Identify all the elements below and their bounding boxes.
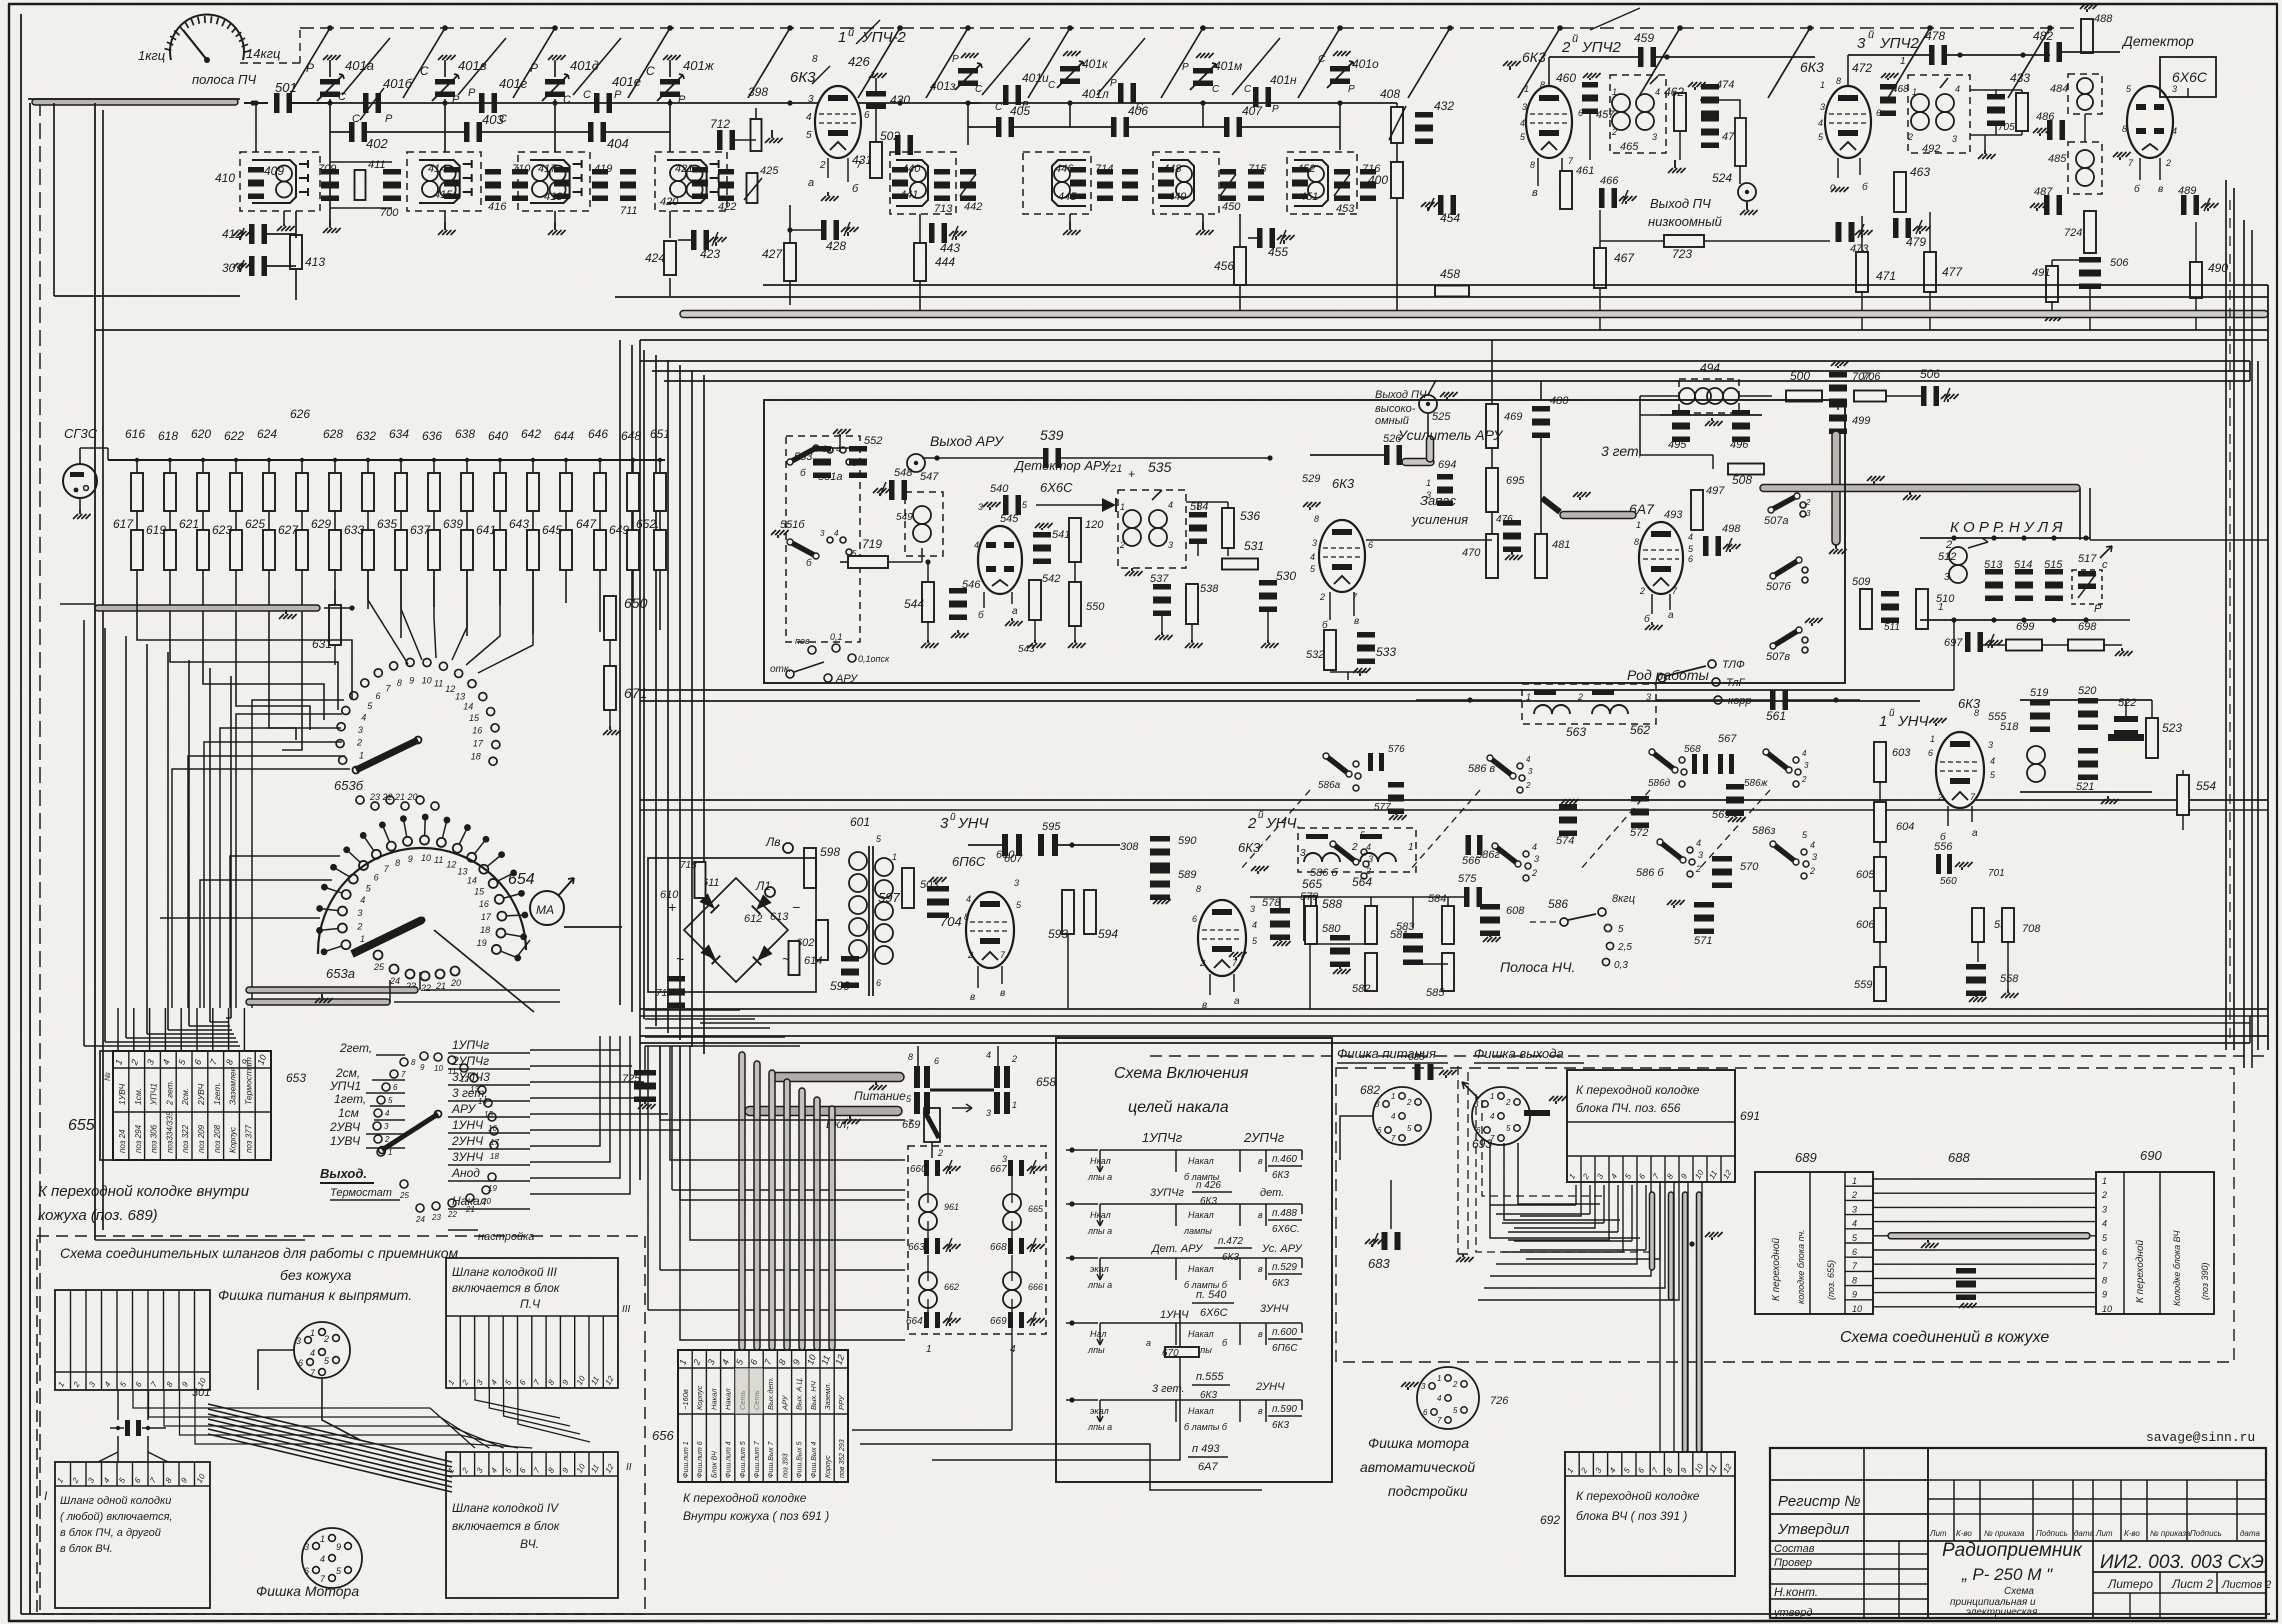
svg-text:3 гет.: 3 гет. <box>1152 1383 1185 1395</box>
svg-text:Р: Р <box>678 94 686 106</box>
svg-text:1УПЧг: 1УПЧг <box>1142 1130 1183 1145</box>
svg-text:6: 6 <box>374 873 379 883</box>
svg-text:500: 500 <box>1790 369 1810 383</box>
svg-text:14кгц: 14кгц <box>246 46 280 61</box>
svg-text:Р: Р <box>2094 603 2102 615</box>
svg-text:УПЧ-2: УПЧ-2 <box>861 29 907 46</box>
svg-text:Р: Р <box>306 61 314 75</box>
svg-text:474: 474 <box>1716 79 1734 91</box>
svg-text:блока ПЧ. поз. 656: блока ПЧ. поз. 656 <box>1576 1101 1681 1115</box>
svg-text:п 493: п 493 <box>1192 1443 1220 1455</box>
svg-text:627: 627 <box>278 523 299 537</box>
svg-text:507б: 507б <box>1766 581 1791 593</box>
svg-text:409: 409 <box>264 164 284 178</box>
svg-text:высоко-: высоко- <box>1375 403 1416 415</box>
svg-text:637: 637 <box>410 523 431 537</box>
svg-text:9: 9 <box>1852 1290 1857 1300</box>
svg-text:б: б <box>2134 183 2140 195</box>
svg-text:а: а <box>808 177 814 189</box>
svg-text:поз 377: поз 377 <box>244 1124 253 1153</box>
svg-text:496: 496 <box>1730 439 1749 451</box>
svg-text:Радиоприемник: Радиоприемник <box>1942 1540 2083 1561</box>
svg-text:11: 11 <box>434 678 443 688</box>
svg-text:8: 8 <box>397 678 402 688</box>
svg-text:Схема соединений в кожух: Схема соединений в кожухе <box>1840 1329 2049 1346</box>
svg-text:644: 644 <box>554 429 574 443</box>
svg-text:605: 605 <box>1856 869 1875 881</box>
svg-text:1: 1 <box>1852 1176 1857 1186</box>
svg-text:а: а <box>1972 828 1978 839</box>
svg-text:3: 3 <box>1168 540 1173 550</box>
svg-text:536: 536 <box>1240 509 1260 523</box>
svg-text:398: 398 <box>748 85 768 99</box>
svg-text:18: 18 <box>490 1152 499 1161</box>
svg-text:п.460: п.460 <box>1272 1154 1297 1165</box>
svg-text:3: 3 <box>1652 132 1657 142</box>
svg-text:449: 449 <box>1168 191 1186 203</box>
svg-text:401о: 401о <box>1352 57 1379 71</box>
svg-text:2: 2 <box>967 950 973 960</box>
svg-text:598: 598 <box>820 845 840 859</box>
svg-text:6К3: 6К3 <box>1800 59 1824 75</box>
svg-text:580: 580 <box>1322 923 1341 935</box>
svg-text:8: 8 <box>1314 514 1319 524</box>
svg-text:Р: Р <box>614 89 622 101</box>
svg-text:1УНЧ: 1УНЧ <box>1160 1309 1189 1321</box>
svg-text:646: 646 <box>588 427 608 441</box>
svg-text:549: 549 <box>896 512 913 523</box>
svg-text:719: 719 <box>862 537 882 551</box>
svg-text:23: 23 <box>431 1213 441 1222</box>
svg-text:8кгц: 8кгц <box>1612 893 1635 905</box>
svg-text:690: 690 <box>2140 1148 2162 1163</box>
svg-text:6: 6 <box>1928 748 1933 758</box>
svg-text:кожуха (поз. 689): кожуха (поз. 689) <box>38 1207 158 1224</box>
svg-text:540: 540 <box>990 483 1009 495</box>
svg-text:П.Ч: П.Ч <box>520 1297 541 1311</box>
svg-text:619: 619 <box>146 523 166 537</box>
svg-text:430: 430 <box>890 93 910 107</box>
svg-text:423: 423 <box>700 247 720 261</box>
svg-text:443: 443 <box>940 241 960 255</box>
svg-text:1: 1 <box>892 852 897 862</box>
svg-text:4: 4 <box>360 895 365 905</box>
svg-text:2: 2 <box>1525 781 1531 790</box>
svg-text:Р: Р <box>385 113 393 125</box>
svg-text:512: 512 <box>1938 551 1956 563</box>
svg-text:Фиш.пит 4: Фиш.пит 4 <box>726 1441 733 1478</box>
svg-text:4: 4 <box>385 1109 390 1118</box>
svg-text:6К3: 6К3 <box>1238 840 1261 855</box>
svg-text:489: 489 <box>2178 185 2196 197</box>
svg-text:5: 5 <box>388 1096 393 1105</box>
svg-text:Лв: Лв <box>765 835 781 849</box>
svg-text:1: 1 <box>2102 1176 2107 1186</box>
svg-text:5: 5 <box>1453 1406 1458 1415</box>
svg-text:10: 10 <box>2102 1304 2112 1314</box>
svg-text:530: 530 <box>1276 569 1296 583</box>
svg-text:624: 624 <box>257 427 277 441</box>
svg-text:577: 577 <box>1374 802 1391 813</box>
svg-text:Фиш.Вых 4: Фиш.Вых 4 <box>811 1442 818 1478</box>
svg-text:441: 441 <box>900 189 918 201</box>
svg-text:4: 4 <box>1990 756 1995 766</box>
svg-text:543: 543 <box>1018 644 1035 655</box>
svg-text:целей накала: целей накала <box>1128 1099 1229 1116</box>
svg-text:4: 4 <box>1391 1112 1396 1121</box>
svg-text:0,1опск: 0,1опск <box>858 654 890 664</box>
svg-text:6: 6 <box>393 1083 398 1092</box>
svg-text:726: 726 <box>1490 1395 1509 1407</box>
svg-text:467: 467 <box>1614 251 1635 265</box>
svg-text:3: 3 <box>1806 509 1811 518</box>
svg-text:6К3: 6К3 <box>1200 1390 1217 1401</box>
svg-text:401д: 401д <box>570 58 599 73</box>
svg-text:4: 4 <box>1310 552 1315 562</box>
svg-text:623: 623 <box>212 523 232 537</box>
svg-text:724: 724 <box>2064 227 2082 239</box>
svg-text:18: 18 <box>480 925 490 935</box>
svg-text:4: 4 <box>1168 500 1173 510</box>
svg-text:601: 601 <box>850 815 870 829</box>
svg-text:9: 9 <box>420 1063 425 1072</box>
svg-text:6К3: 6К3 <box>1522 49 1546 65</box>
svg-text:462: 462 <box>1664 85 1684 99</box>
svg-text:й: й <box>1889 708 1895 719</box>
svg-text:поз 393: поз 393 <box>782 1453 789 1478</box>
svg-text:6К3: 6К3 <box>1332 476 1355 491</box>
svg-text:Литеро: Литеро <box>2107 1577 2153 1591</box>
svg-text:12: 12 <box>460 1075 469 1084</box>
svg-text:582: 582 <box>1352 983 1370 995</box>
svg-text:511: 511 <box>1884 622 1900 633</box>
svg-text:547: 547 <box>920 471 939 483</box>
svg-text:п.555: п.555 <box>1196 1371 1224 1383</box>
svg-text:усиления: усиления <box>1411 512 1468 527</box>
svg-text:~: ~ <box>676 951 684 967</box>
svg-text:Лит: Лит <box>2095 1529 2113 1538</box>
svg-text:10: 10 <box>434 1064 443 1073</box>
svg-text:593: 593 <box>1048 927 1068 941</box>
svg-text:2: 2 <box>323 1334 329 1344</box>
svg-text:в: в <box>1354 616 1359 627</box>
svg-text:454: 454 <box>1440 211 1460 225</box>
svg-text:С: С <box>338 91 346 103</box>
svg-text:401е: 401е <box>612 74 641 89</box>
svg-text:1: 1 <box>1612 87 1617 97</box>
svg-text:417: 417 <box>538 163 557 175</box>
svg-text:586 б: 586 б <box>1636 867 1664 879</box>
svg-text:16: 16 <box>479 899 489 909</box>
svg-text:3: 3 <box>1300 848 1306 859</box>
svg-text:С: С <box>975 84 983 95</box>
svg-text:6К3: 6К3 <box>1222 1252 1239 1263</box>
svg-text:Детектор: Детектор <box>2121 33 2194 49</box>
svg-text:б: б <box>1644 613 1650 625</box>
svg-text:667: 667 <box>990 1164 1007 1175</box>
svg-text:Накал: Накал <box>1188 1406 1214 1416</box>
svg-text:647: 647 <box>576 517 597 531</box>
svg-text:1см.: 1см. <box>133 1088 143 1105</box>
svg-text:546: 546 <box>962 579 981 591</box>
svg-text:отк.: отк. <box>770 664 791 675</box>
svg-text:Накал: Накал <box>1188 1156 1214 1166</box>
svg-text:0,1: 0,1 <box>830 632 843 642</box>
svg-text:712: 712 <box>710 117 730 131</box>
svg-text:414: 414 <box>428 163 446 175</box>
svg-text:519: 519 <box>2030 687 2048 699</box>
svg-text:Термостат: Термостат <box>330 1187 392 1199</box>
svg-text:п.472: п.472 <box>1218 1236 1243 1247</box>
svg-text:Ус. АРУ: Ус. АРУ <box>1261 1243 1303 1255</box>
svg-text:1: 1 <box>926 1344 932 1355</box>
svg-text:14: 14 <box>467 876 477 886</box>
svg-text:поз 294: поз 294 <box>134 1124 143 1153</box>
svg-text:446: 446 <box>1055 163 1074 175</box>
svg-text:3: 3 <box>1534 854 1539 864</box>
svg-text:15: 15 <box>469 713 480 723</box>
svg-text:701: 701 <box>1988 868 2005 879</box>
svg-text:308: 308 <box>1120 841 1139 853</box>
svg-text:4: 4 <box>2172 126 2177 136</box>
svg-text:427: 427 <box>762 247 783 261</box>
svg-text:УНЧ.: УНЧ. <box>1265 815 1301 832</box>
svg-text:554: 554 <box>2196 779 2216 793</box>
svg-text:416: 416 <box>488 201 507 213</box>
svg-text:572: 572 <box>1630 827 1648 839</box>
svg-text:586д: 586д <box>1648 778 1671 789</box>
svg-text:Р: Р <box>1348 84 1355 95</box>
svg-text:Выход.: Выход. <box>320 1166 367 1181</box>
svg-text:а: а <box>1012 606 1018 617</box>
svg-text:669: 669 <box>990 1316 1007 1327</box>
svg-text:567: 567 <box>1718 733 1737 745</box>
svg-text:3УПЧ3: 3УПЧ3 <box>452 1070 490 1084</box>
svg-text:636: 636 <box>422 429 442 443</box>
svg-text:3: 3 <box>808 94 814 105</box>
svg-text:Листов 2: Листов 2 <box>2221 1579 2271 1591</box>
svg-text:включается в блок: включается в блок <box>452 1281 561 1295</box>
svg-text:717: 717 <box>656 988 673 999</box>
svg-text:в: в <box>970 992 975 1003</box>
svg-text:Корпус: Корпус <box>229 1127 238 1153</box>
svg-text:п.600: п.600 <box>1272 1327 1297 1338</box>
svg-text:495: 495 <box>1668 439 1687 451</box>
svg-text:1УПЧг: 1УПЧг <box>452 1038 489 1052</box>
svg-text:723: 723 <box>1672 247 1692 261</box>
svg-text:1: 1 <box>1900 56 1906 67</box>
svg-text:3: 3 <box>1852 1204 1857 1214</box>
svg-text:563: 563 <box>1566 725 1586 739</box>
svg-text:б: б <box>1862 181 1868 193</box>
svg-text:670: 670 <box>1162 1348 1179 1359</box>
svg-text:655: 655 <box>68 1117 95 1134</box>
svg-text:1: 1 <box>1912 87 1917 97</box>
svg-text:3: 3 <box>1952 134 1957 144</box>
svg-text:6: 6 <box>2102 1247 2107 1257</box>
svg-text:574: 574 <box>1556 835 1574 847</box>
svg-text:491: 491 <box>2032 267 2050 279</box>
svg-text:К переходной колодке внутри: К переходной колодке внутри <box>38 1183 250 1200</box>
svg-text:й: й <box>848 27 854 39</box>
svg-text:4: 4 <box>310 1348 315 1358</box>
svg-text:588: 588 <box>1322 897 1342 911</box>
svg-text:6: 6 <box>298 1358 303 1368</box>
svg-text:586а: 586а <box>1318 780 1341 791</box>
svg-text:№: № <box>103 1072 112 1081</box>
svg-text:УПЧ1: УПЧ1 <box>149 1083 159 1106</box>
svg-text:б: б <box>800 467 806 479</box>
svg-text:401н: 401н <box>1270 73 1297 87</box>
svg-text:б: б <box>806 557 812 569</box>
svg-text:442: 442 <box>964 201 982 213</box>
svg-text:Накал: Накал <box>709 1388 718 1410</box>
svg-text:3: 3 <box>1988 740 1993 750</box>
svg-text:1: 1 <box>359 751 364 761</box>
svg-text:2: 2 <box>1695 864 1701 874</box>
svg-text:Регистр №: Регистр № <box>1778 1493 1861 1510</box>
svg-text:( любой) включается,: ( любой) включается, <box>60 1511 173 1523</box>
svg-text:412: 412 <box>222 227 242 241</box>
svg-text:утверд: утверд <box>1773 1607 1812 1619</box>
svg-text:Фош.пит 6: Фош.пит 6 <box>697 1441 704 1478</box>
svg-text:Подпись: Подпись <box>2190 1529 2222 1538</box>
svg-text:648: 648 <box>621 429 641 443</box>
svg-text:410: 410 <box>215 171 235 185</box>
svg-text:п 426: п 426 <box>1196 1180 1221 1191</box>
svg-text:1: 1 <box>838 29 846 46</box>
svg-text:586: 586 <box>1548 897 1568 911</box>
svg-text:1: 1 <box>1524 84 1529 94</box>
svg-text:3: 3 <box>1522 102 1527 112</box>
svg-text:6: 6 <box>1476 1126 1481 1135</box>
svg-text:б: б <box>978 609 984 621</box>
svg-text:469: 469 <box>1504 411 1522 423</box>
svg-text:10: 10 <box>421 853 431 863</box>
svg-text:682: 682 <box>1360 1083 1380 1097</box>
svg-text:460: 460 <box>1556 71 1576 85</box>
svg-text:628: 628 <box>323 427 343 441</box>
svg-text:Вых.дет.: Вых.дет. <box>766 1377 775 1410</box>
svg-text:9: 9 <box>408 854 413 864</box>
svg-text:Шланг колодкой III: Шланг колодкой III <box>452 1265 558 1279</box>
svg-text:АРУ: АРУ <box>451 1102 476 1116</box>
svg-text:4: 4 <box>1852 1219 1857 1229</box>
svg-text:613: 613 <box>770 911 789 923</box>
svg-text:12: 12 <box>445 684 455 694</box>
svg-text:2: 2 <box>1199 958 1205 968</box>
svg-text:1УВЧ: 1УВЧ <box>117 1083 127 1105</box>
svg-text:в: в <box>1532 187 1538 199</box>
svg-text:2: 2 <box>819 160 826 171</box>
svg-text:507а: 507а <box>1764 515 1788 527</box>
svg-text:лпы а: лпы а <box>1087 1172 1112 1182</box>
svg-text:3УНЧ: 3УНЧ <box>452 1150 484 1164</box>
svg-text:2УНЧ: 2УНЧ <box>1255 1381 1285 1393</box>
svg-text:2: 2 <box>1011 1054 1017 1064</box>
svg-text:Н.конт.: Н.конт. <box>1774 1585 1818 1599</box>
svg-text:8: 8 <box>2102 1275 2107 1285</box>
svg-text:2см.: 2см. <box>180 1088 190 1106</box>
svg-text:11: 11 <box>434 855 443 865</box>
svg-text:4: 4 <box>1490 1112 1495 1121</box>
svg-text:450: 450 <box>1222 201 1241 213</box>
svg-text:2: 2 <box>1937 792 1943 802</box>
svg-text:569: 569 <box>1712 809 1730 821</box>
svg-text:14: 14 <box>463 702 473 712</box>
svg-text:ТлГ: ТлГ <box>1726 677 1746 689</box>
svg-text:518: 518 <box>2000 721 2019 733</box>
svg-text:663: 663 <box>908 1242 925 1253</box>
svg-text:(поз. 655): (поз. 655) <box>1826 1260 1836 1300</box>
svg-text:645: 645 <box>542 523 562 537</box>
svg-text:595: 595 <box>1042 821 1061 833</box>
svg-text:691: 691 <box>1740 1109 1760 1123</box>
svg-text:10: 10 <box>1852 1304 1862 1314</box>
svg-text:411: 411 <box>368 159 386 171</box>
svg-text:в: в <box>2158 184 2163 195</box>
svg-text:471: 471 <box>1876 269 1896 283</box>
svg-text:625: 625 <box>245 517 265 531</box>
svg-text:2: 2 <box>2101 1190 2107 1200</box>
svg-text:2: 2 <box>1945 539 1952 551</box>
svg-text:2: 2 <box>1351 842 1358 853</box>
svg-text:Фишка питания к выпрямит.: Фишка питания к выпрямит. <box>218 1287 412 1303</box>
svg-text:622: 622 <box>224 429 244 443</box>
svg-text:586 б: 586 б <box>1310 867 1338 879</box>
svg-text:в: в <box>1258 1156 1263 1166</box>
svg-text:6К3: 6К3 <box>1272 1278 1289 1289</box>
svg-text:488: 488 <box>2094 13 2113 25</box>
svg-text:Дет. АРУ: Дет. АРУ <box>1150 1243 1203 1255</box>
svg-text:424: 424 <box>645 251 665 265</box>
svg-text:1гет,: 1гет, <box>334 1092 366 1106</box>
svg-text:дата: дата <box>2240 1529 2260 1538</box>
svg-text:568: 568 <box>1684 744 1701 755</box>
svg-text:Шланг одной колодки: Шланг одной колодки <box>60 1495 171 1507</box>
svg-text:633: 633 <box>344 523 364 537</box>
svg-text:515: 515 <box>2044 559 2063 571</box>
svg-text:401в: 401в <box>458 58 487 73</box>
svg-text:2: 2 <box>1406 1098 1412 1107</box>
svg-text:6Х6С: 6Х6С <box>1040 480 1073 495</box>
svg-text:дата: дата <box>2074 1529 2094 1538</box>
svg-text:6Х6С: 6Х6С <box>1200 1307 1228 1319</box>
svg-text:402: 402 <box>366 136 388 151</box>
svg-text:1УНЧ: 1УНЧ <box>452 1118 484 1132</box>
svg-text:683: 683 <box>1368 1256 1390 1271</box>
svg-text:482: 482 <box>2033 29 2053 43</box>
svg-text:3: 3 <box>1820 102 1825 112</box>
svg-text:Усилитель АРУ: Усилитель АРУ <box>1397 427 1504 443</box>
svg-text:3: 3 <box>1698 850 1703 860</box>
svg-text:а: а <box>1146 1338 1151 1348</box>
svg-text:401м: 401м <box>1214 59 1242 73</box>
svg-text:2: 2 <box>356 738 362 748</box>
svg-text:1см: 1см <box>338 1106 359 1120</box>
svg-text:542: 542 <box>1042 573 1060 585</box>
svg-text:Заземл.: Заземл. <box>823 1382 832 1410</box>
svg-text:3: 3 <box>296 1336 301 1346</box>
svg-text:в: в <box>1000 988 1005 999</box>
svg-text:10: 10 <box>422 675 432 685</box>
svg-text:К-во: К-во <box>2124 1529 2140 1538</box>
svg-text:639: 639 <box>443 517 463 531</box>
svg-text:400: 400 <box>1368 173 1388 187</box>
svg-text:4: 4 <box>1696 838 1701 848</box>
svg-text:Накал: Накал <box>1188 1210 1214 1220</box>
svg-text:18: 18 <box>471 751 481 761</box>
